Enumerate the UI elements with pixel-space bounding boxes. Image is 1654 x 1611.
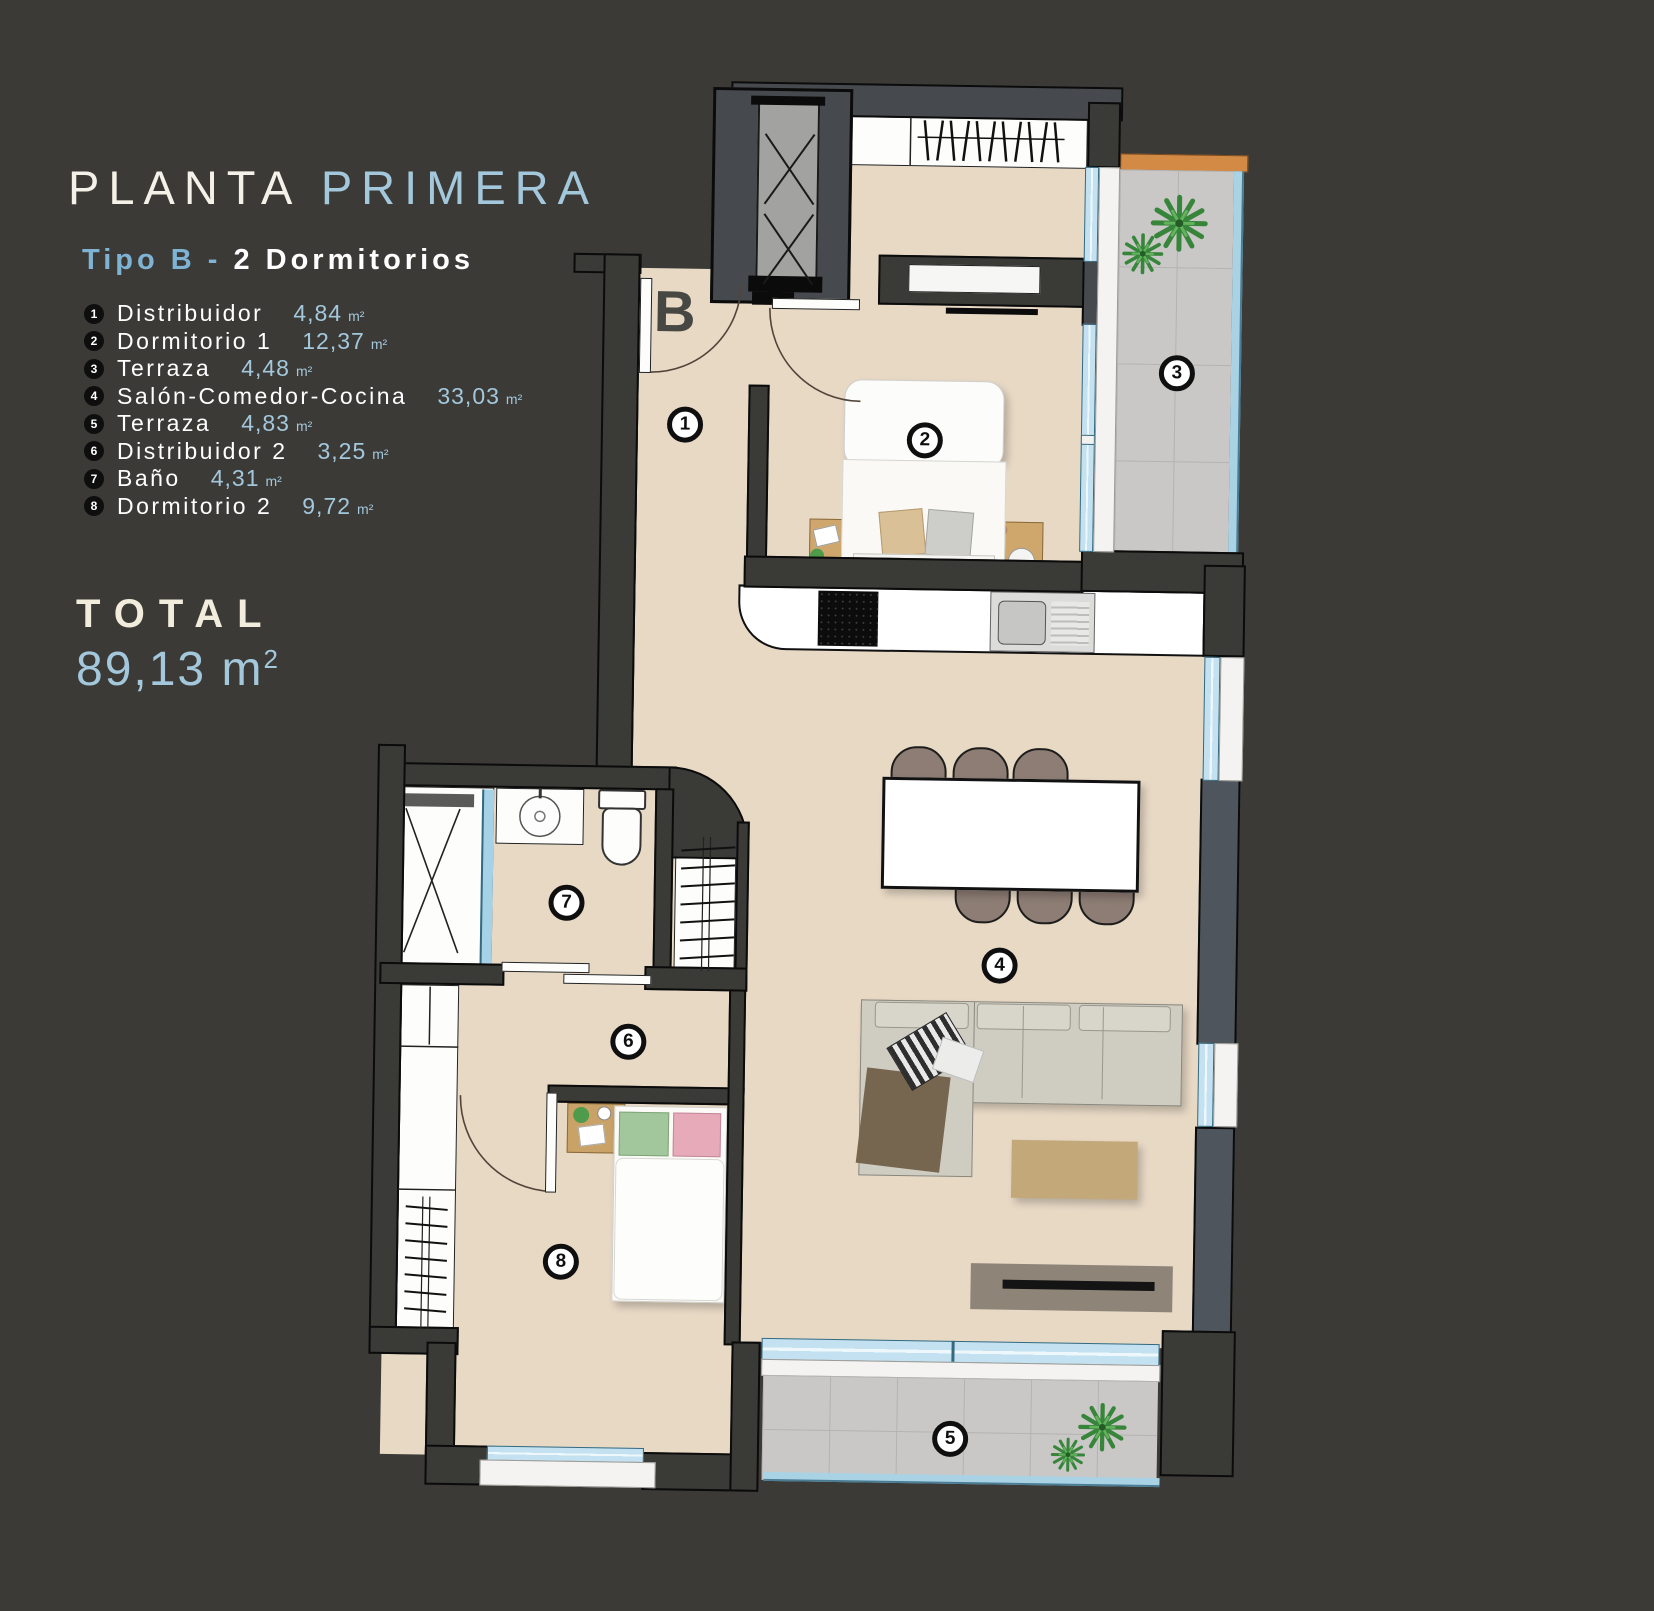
window-living-1 [1203,657,1221,781]
floor-plan: B 1 2 3 4 5 6 7 8 [0,0,1654,1611]
window-frame-break [1081,435,1095,445]
wall-kitchen-right [1202,565,1245,658]
terrace5-door-mullion [951,1341,954,1363]
wall-terrace5-left [729,1341,760,1491]
elevator-cap-bottom [748,276,822,293]
sill-bedroom2 [479,1459,655,1488]
corridor-wardrobe [396,984,459,1333]
sofa-throw-blanket [856,1067,951,1172]
kitchen-counter [738,584,1206,656]
washbasin-counter [495,788,584,845]
toilet-bowl [601,807,642,866]
elevator-cab [755,100,820,293]
wall-closet-right [734,821,750,991]
wall-bedroom1-inset [908,264,1040,294]
wall-annex-step-v [425,1342,457,1460]
bed-cushion-beige [878,508,926,558]
bed-single-duvet [613,1158,724,1302]
elevator-cap-top [751,96,825,106]
entry-closet [835,115,1088,169]
sofa-back-cushion [875,1002,969,1029]
bathroom-sliding-door-a [501,962,589,973]
desk-clock [597,1106,611,1120]
wall-bath-bottom-a [379,962,504,986]
dining-table [881,777,1141,893]
wall-bath-top [382,762,676,791]
desk-paper [578,1124,606,1147]
bedroom1-door-leaf [772,298,860,310]
bed-cushion-gray [924,509,974,559]
wall-kitchen-top [743,556,1083,593]
wall-living-right-2 [1192,1127,1235,1336]
window-living-2 [1197,1043,1214,1127]
wall-living-right-1 [1196,779,1240,1046]
cooktop [818,591,879,647]
sofa-back-cushion [1079,1005,1171,1032]
entry-door-leaf [639,278,652,373]
bedroom2-door-leaf [545,1092,558,1192]
wall-closet-corner [1087,102,1121,169]
sink-basin [998,601,1047,646]
wall-bottom-right [1160,1330,1236,1477]
coffee-table [1011,1140,1138,1200]
wall-bedroom2-top [547,1084,744,1105]
wall-bedroom2-bottom-r [641,1452,742,1492]
sill-living-1 [1219,657,1245,781]
bed-pillow-pink [673,1112,722,1157]
wall-bath-right [652,788,674,988]
sill-living-2 [1213,1043,1238,1127]
window-bedroom1-a [1084,167,1099,262]
sink-drainboard [1051,601,1090,646]
wall-bath-bottom-b [644,966,747,992]
wall-hall-bedroom1 [746,385,770,575]
block-letter: B [653,278,696,346]
shower-head-bar [404,793,474,807]
bathroom-sliding-door-b [563,974,651,985]
bed-pillow-green [619,1112,670,1157]
